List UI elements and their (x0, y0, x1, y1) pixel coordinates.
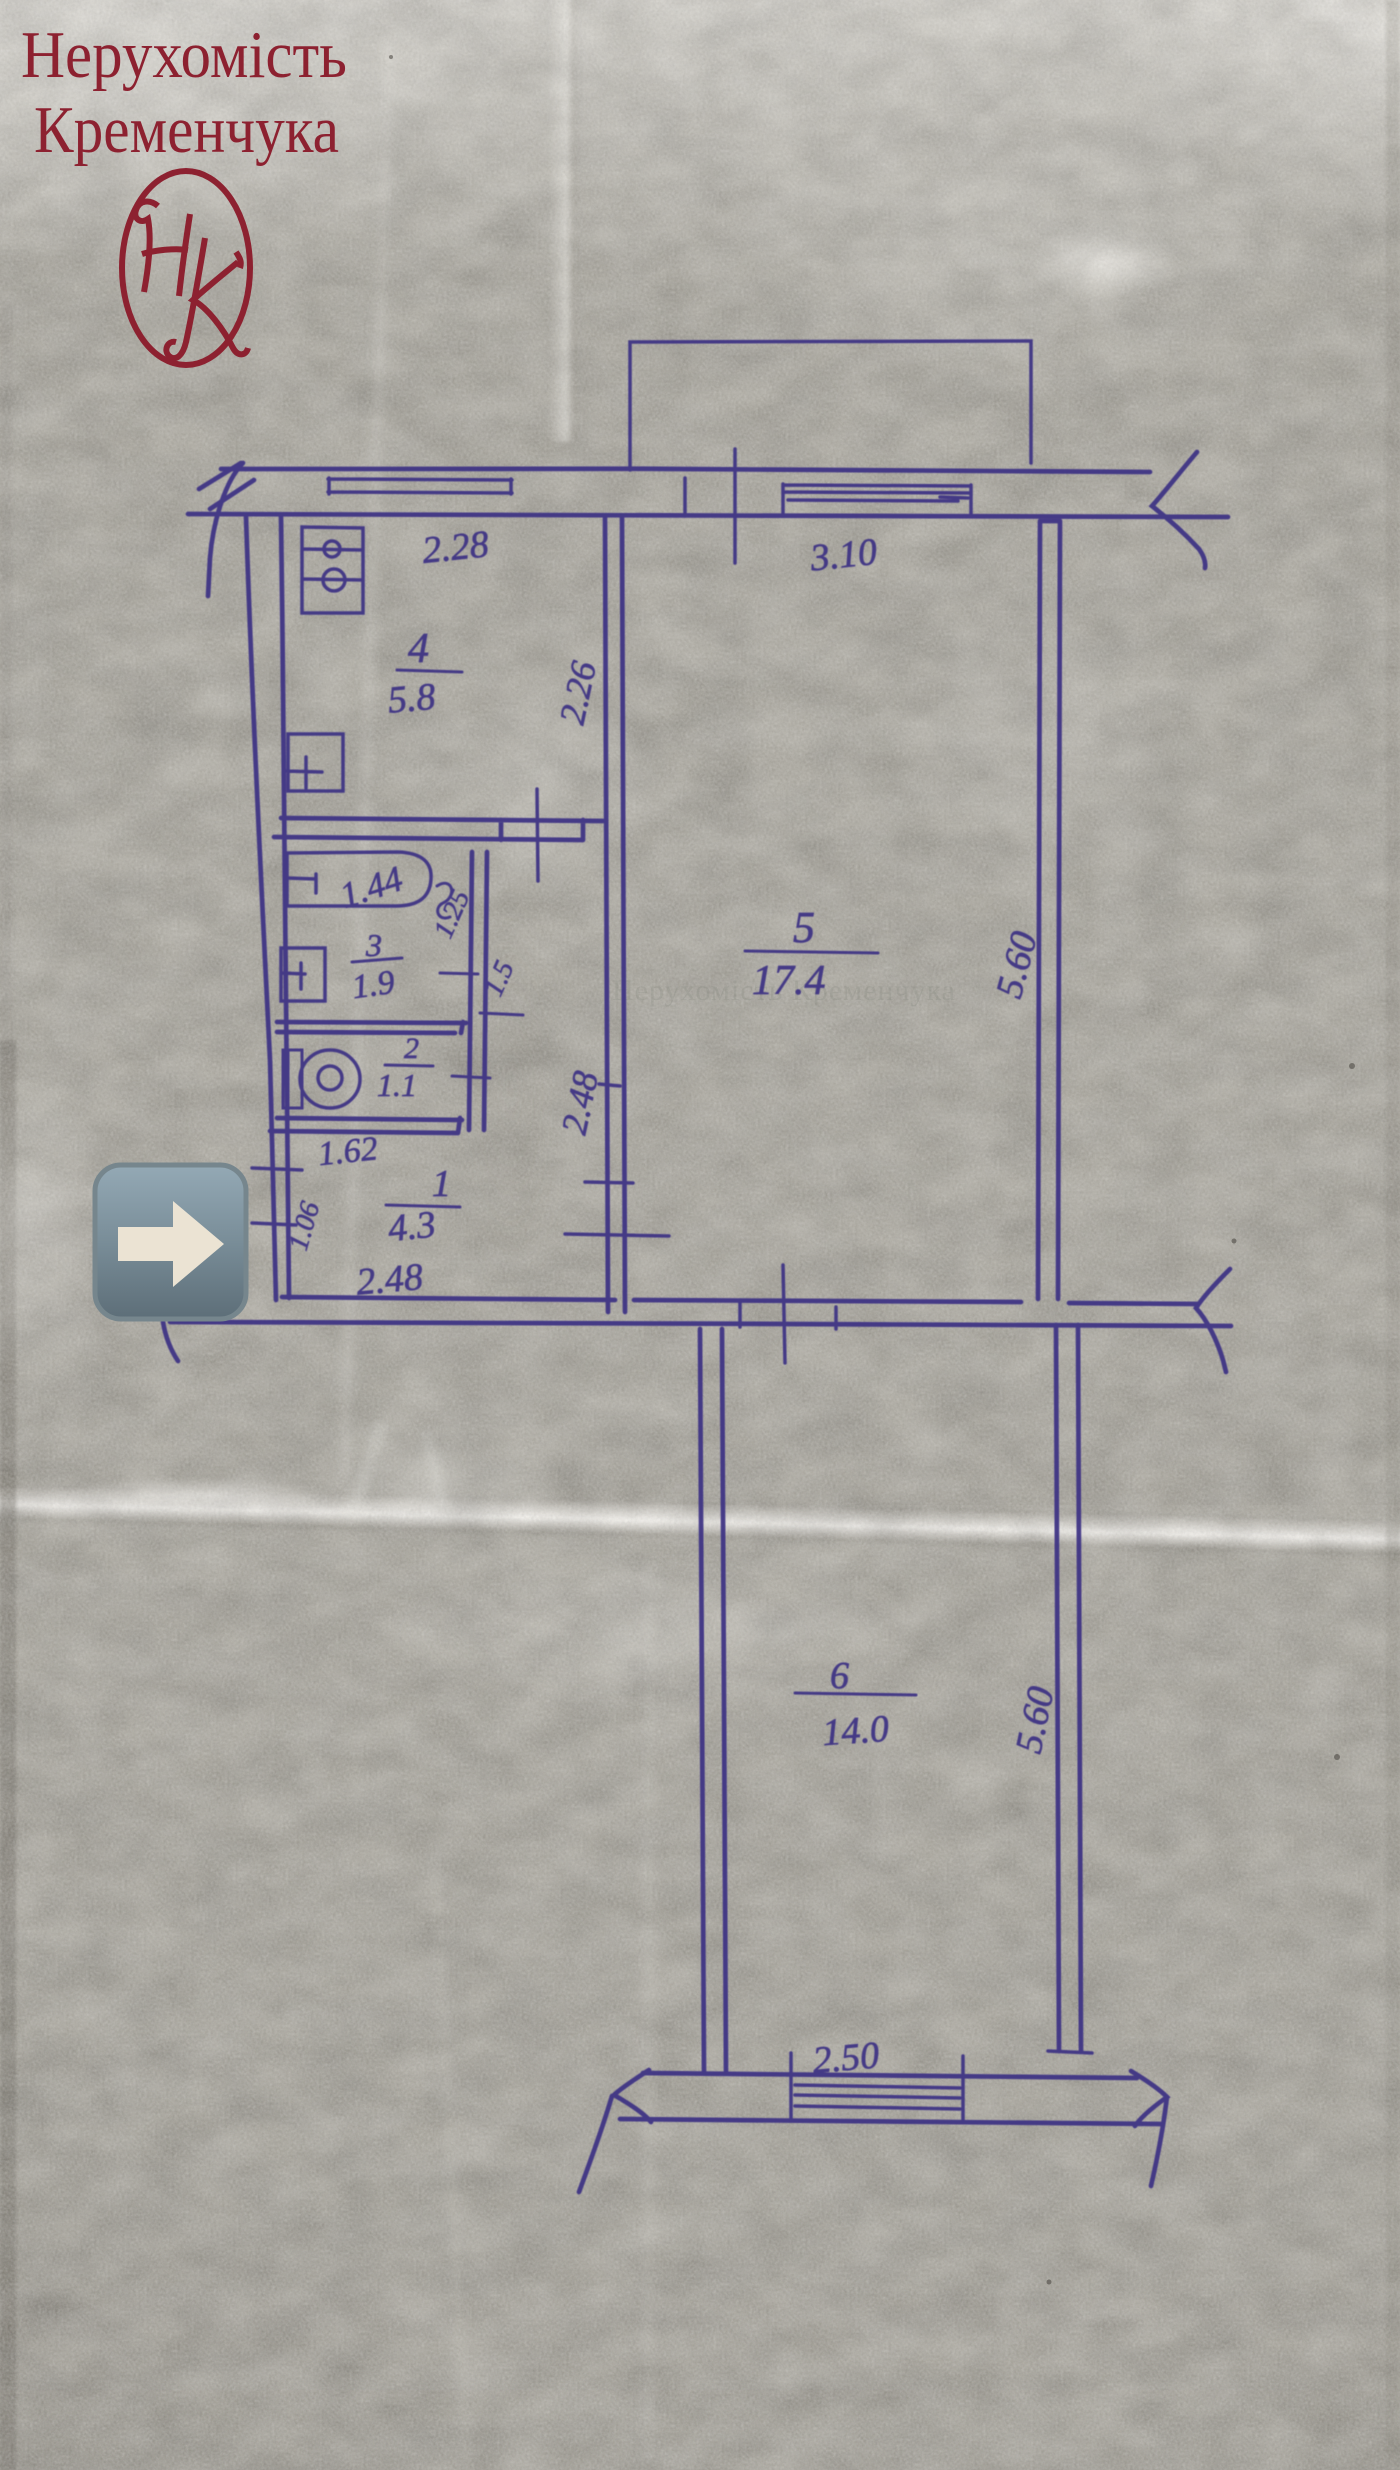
svg-text:3: 3 (365, 927, 382, 963)
svg-text:14.0: 14.0 (821, 1708, 890, 1755)
svg-text:4.3: 4.3 (386, 1203, 438, 1250)
svg-text:2.28: 2.28 (420, 523, 491, 572)
svg-text:1.9: 1.9 (350, 964, 397, 1007)
svg-text:2.50: 2.50 (811, 2034, 881, 2082)
svg-text:17.4: 17.4 (752, 958, 826, 1004)
svg-text:Нерухомість: Нерухомість (21, 18, 347, 92)
svg-text:1.62: 1.62 (316, 1130, 379, 1173)
svg-text:2.48: 2.48 (355, 1256, 425, 1304)
svg-text:3.10: 3.10 (807, 531, 879, 580)
svg-text:1.1: 1.1 (377, 1067, 417, 1103)
svg-text:1: 1 (432, 1163, 451, 1205)
svg-text:4: 4 (408, 626, 429, 672)
svg-text:Кременчука: Кременчука (34, 93, 339, 167)
svg-text:2: 2 (404, 1032, 419, 1065)
svg-text:6: 6 (830, 1655, 849, 1697)
svg-text:5.8: 5.8 (386, 676, 437, 722)
svg-text:5: 5 (793, 903, 815, 952)
